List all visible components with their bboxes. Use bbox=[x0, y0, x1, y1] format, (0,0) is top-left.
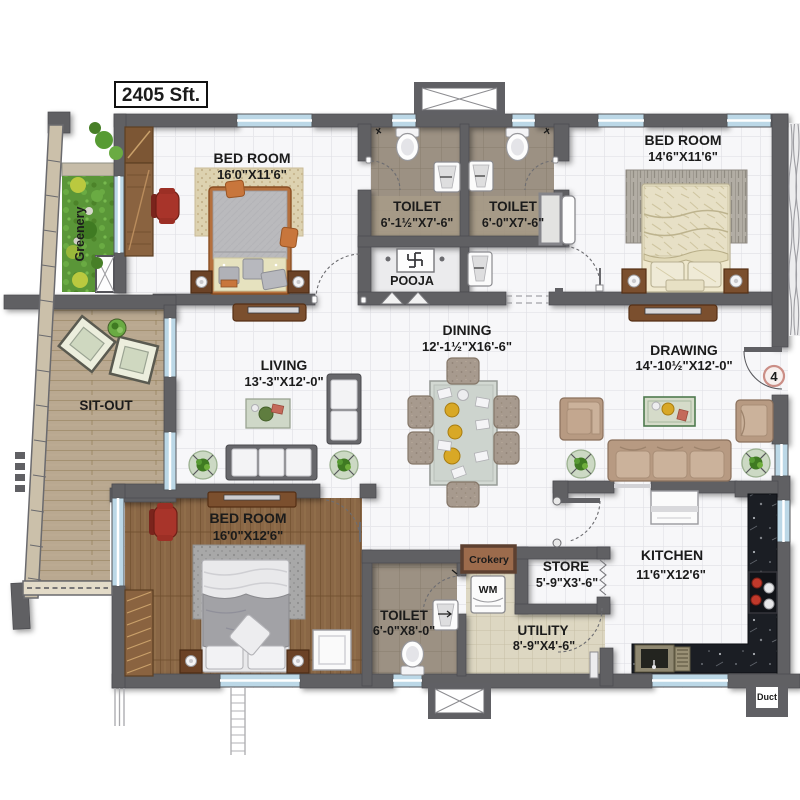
svg-text:STORE: STORE bbox=[543, 559, 589, 574]
svg-text:POOJA: POOJA bbox=[390, 274, 434, 288]
svg-text:Greenery: Greenery bbox=[73, 207, 87, 262]
svg-text:DRAWING: DRAWING bbox=[650, 342, 718, 358]
svg-text:14'-10½"X12'-0": 14'-10½"X12'-0" bbox=[635, 358, 732, 373]
svg-text:6'-0"X7'-6": 6'-0"X7'-6" bbox=[482, 216, 544, 230]
svg-text:TOILET: TOILET bbox=[489, 199, 538, 214]
svg-text:4: 4 bbox=[770, 369, 778, 384]
svg-text:8'-9"X4'-6": 8'-9"X4'-6" bbox=[513, 639, 575, 653]
svg-text:2405 Sft.: 2405 Sft. bbox=[122, 85, 200, 106]
svg-text:UTILITY: UTILITY bbox=[518, 623, 569, 638]
svg-text:13'-3"X12'-0": 13'-3"X12'-0" bbox=[244, 374, 323, 389]
svg-text:DINING: DINING bbox=[443, 322, 492, 338]
svg-text:KITCHEN: KITCHEN bbox=[641, 547, 703, 563]
svg-text:BED ROOM: BED ROOM bbox=[214, 150, 291, 166]
svg-text:LIVING: LIVING bbox=[261, 357, 308, 373]
svg-text:BED ROOM: BED ROOM bbox=[645, 132, 722, 148]
svg-text:16'0"X11'6": 16'0"X11'6" bbox=[217, 167, 287, 182]
svg-text:6'-1½"X7'-6": 6'-1½"X7'-6" bbox=[381, 216, 454, 230]
svg-text:14'6"X11'6": 14'6"X11'6" bbox=[648, 149, 718, 164]
svg-text:12'-1½"X16'-6": 12'-1½"X16'-6" bbox=[422, 339, 512, 354]
svg-text:11'6"X12'6": 11'6"X12'6" bbox=[636, 567, 706, 582]
svg-text:Duct: Duct bbox=[757, 692, 777, 702]
svg-text:Crokery: Crokery bbox=[469, 554, 509, 566]
svg-text:5'-9"X3'-6": 5'-9"X3'-6" bbox=[536, 576, 598, 590]
svg-text:6'-0"X8'-0": 6'-0"X8'-0" bbox=[373, 624, 435, 638]
svg-text:BED ROOM: BED ROOM bbox=[210, 510, 287, 526]
svg-text:TOILET: TOILET bbox=[393, 199, 442, 214]
svg-text:SIT-OUT: SIT-OUT bbox=[79, 398, 133, 413]
svg-text:WM: WM bbox=[479, 584, 498, 596]
svg-text:TOILET: TOILET bbox=[380, 608, 429, 623]
svg-text:16'0"X12'6": 16'0"X12'6" bbox=[213, 528, 284, 543]
